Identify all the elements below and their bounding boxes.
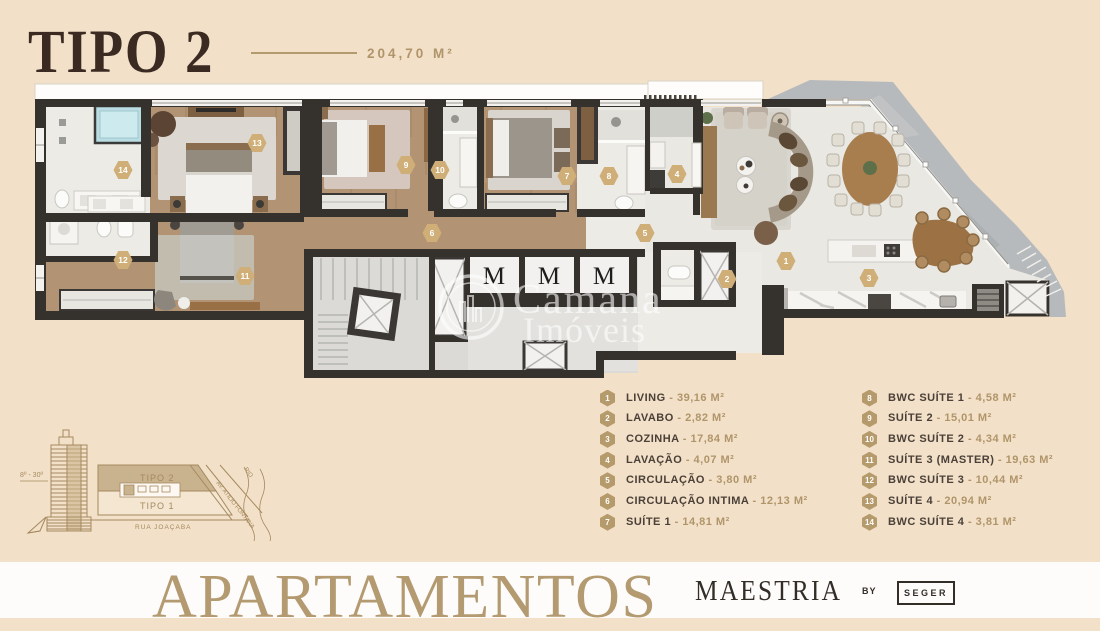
svg-text:5: 5 <box>643 228 648 238</box>
svg-text:8: 8 <box>607 171 612 181</box>
svg-text:TIPO 1: TIPO 1 <box>140 501 175 511</box>
svg-text:10: 10 <box>435 165 445 175</box>
svg-text:2: 2 <box>725 274 730 284</box>
svg-text:14: 14 <box>118 165 128 175</box>
svg-text:RUA JOAÇABA: RUA JOAÇABA <box>135 524 192 531</box>
svg-text:9: 9 <box>404 160 409 170</box>
svg-text:12: 12 <box>118 255 128 265</box>
svg-text:4: 4 <box>675 169 680 179</box>
svg-text:Imóveis: Imóveis <box>523 310 646 350</box>
svg-text:3: 3 <box>867 273 872 283</box>
svg-text:11: 11 <box>241 271 250 281</box>
svg-text:RIO: RIO <box>242 467 253 479</box>
svg-text:7: 7 <box>565 171 570 181</box>
svg-text:13: 13 <box>252 138 262 148</box>
svg-text:6: 6 <box>430 228 435 238</box>
svg-text:1: 1 <box>784 256 789 266</box>
svg-text:8º - 30º: 8º - 30º <box>20 472 43 479</box>
svg-text:TIPO 2: TIPO 2 <box>140 473 175 483</box>
